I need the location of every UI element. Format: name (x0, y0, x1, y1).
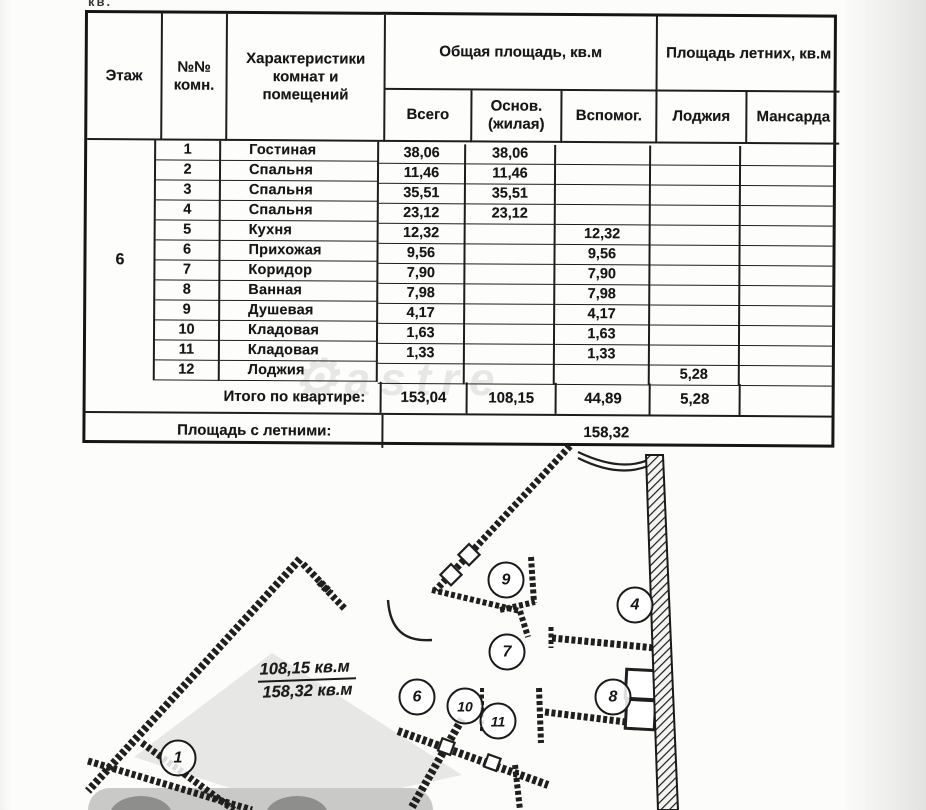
header-total-area-group: Общая площадь, кв.м (386, 15, 658, 92)
room-marker-11-label: 11 (491, 713, 506, 729)
room-name-cell: Кладовая (220, 321, 378, 342)
mansard-cell (740, 246, 832, 267)
aux-cell (556, 205, 651, 226)
main-cell (465, 304, 555, 325)
room-marker-4: 4 (617, 587, 654, 624)
total-cell: 4,17 (378, 304, 465, 325)
main-cell (465, 264, 555, 285)
header-loggia: Лоджия (657, 91, 747, 144)
room-name-cell: Кухня (221, 221, 379, 242)
room-name-cell: Коридор (220, 261, 378, 282)
room-marker-8: 8 (595, 679, 632, 716)
total-cell: 9,56 (378, 244, 465, 265)
room-no-cell: 4 (156, 200, 221, 220)
loggia-cell (650, 305, 740, 326)
room-marker-1: 1 (160, 740, 197, 777)
totals-total: 153,04 (381, 382, 467, 414)
room-marker-6-label: 6 (413, 688, 422, 706)
header-auxiliary: Вспомог. (562, 91, 657, 144)
room-no-cell: 7 (155, 260, 220, 280)
totals-loggia: 5,28 (651, 383, 740, 415)
outer-right-wall (646, 455, 678, 810)
room-no-cell: 11 (155, 340, 220, 360)
aux-cell: 1,33 (555, 345, 650, 366)
room-marker-4-label: 4 (631, 596, 640, 614)
mansard-cell (741, 206, 833, 227)
main-cell (465, 324, 555, 345)
room-marker-1-label: 1 (174, 749, 183, 767)
mansard-cell (740, 306, 832, 327)
main-cell (465, 284, 555, 305)
room-name-cell: Душевая (220, 301, 378, 322)
header-total: Всего (385, 90, 472, 143)
total-cell: 12,32 (379, 224, 466, 245)
plan-area-with-summer: 158,32 кв.м (258, 679, 357, 702)
total-cell: 1,63 (378, 324, 465, 345)
header-mansard: Мансарда (747, 92, 839, 145)
totals-mansard (740, 384, 831, 416)
total-cell: 1,33 (378, 344, 465, 365)
room-marker-9-label: 9 (502, 571, 511, 589)
mansard-cell (741, 146, 833, 167)
mansard-cell (740, 366, 832, 387)
loggia-cell (651, 205, 741, 226)
floor-value: 6 (86, 140, 156, 380)
aux-cell: 7,90 (555, 265, 650, 286)
loggia-cell (651, 145, 741, 166)
mansard-cell (741, 226, 833, 247)
page-top-cutoff-text: кв. (88, 0, 112, 9)
loggia-cell (650, 265, 740, 286)
loggia-cell (650, 325, 740, 346)
loggia-cell (650, 285, 740, 306)
main-cell: 11,46 (466, 164, 556, 185)
loggia-cell (651, 165, 741, 186)
room-no-cell: 6 (155, 240, 220, 260)
aux-cell: 1,63 (555, 325, 650, 346)
room-name-cell: Ванная (220, 281, 378, 302)
room-marker-7-label: 7 (503, 643, 512, 661)
aux-cell: 12,32 (556, 225, 651, 246)
mansard-cell (740, 346, 832, 367)
header-room-number: №№ комн. (162, 13, 228, 140)
header-characteristics: Характеристики комнат и помещений (227, 14, 386, 142)
main-cell: 38,06 (466, 144, 556, 165)
room-marker-6: 6 (399, 679, 436, 716)
room-no-cell: 9 (155, 300, 220, 320)
total-cell: 23,12 (379, 204, 466, 225)
totals-auxiliary: 44,89 (557, 383, 651, 415)
mansard-cell (741, 166, 833, 187)
table-body: 6 1Гостиная38,0638,062Спальня11,4611,463… (86, 140, 833, 385)
main-cell: 23,12 (466, 204, 556, 225)
room-marker-7: 7 (489, 634, 526, 671)
room-name-cell: Гостиная (221, 141, 379, 162)
header-summer-area-group: Площадь летних, кв.м (658, 17, 840, 93)
room-name-cell: Спальня (221, 181, 379, 202)
main-cell: 35,51 (466, 184, 556, 205)
room-name-cell: Спальня (221, 201, 379, 222)
floor-plan: 1 4 6 7 8 9 10 11 108,15 кв.м 158,32 кв.… (0, 443, 926, 810)
room-no-cell: 8 (155, 280, 220, 300)
loggia-cell: 5,28 (650, 365, 740, 386)
mansard-cell (740, 266, 832, 287)
aux-cell (556, 145, 651, 166)
aux-cell: 7,98 (555, 285, 650, 306)
area-table: Этаж №№ комн. Характеристики комнат и по… (82, 10, 837, 448)
main-cell (465, 344, 555, 365)
room-marker-10: 10 (447, 688, 484, 725)
room-marker-9: 9 (488, 562, 525, 599)
total-cell (378, 364, 465, 385)
room-no-cell: 1 (156, 140, 221, 160)
loggia-cell (650, 245, 740, 266)
aux-cell (556, 185, 651, 206)
floor-plan-drawing (0, 443, 926, 810)
totals-main: 108,15 (468, 382, 557, 414)
room-no-cell: 10 (155, 320, 220, 340)
room-name-cell: Кладовая (220, 341, 378, 362)
total-cell: 35,51 (379, 184, 466, 205)
aux-cell: 9,56 (555, 245, 650, 266)
plan-area-living: 108,15 кв.м (257, 657, 356, 682)
room-name-cell: Прихожая (220, 241, 378, 262)
room-name-cell: Лоджия (220, 361, 378, 382)
mansard-cell (740, 326, 832, 347)
room-no-cell: 12 (155, 360, 220, 380)
main-cell (466, 224, 556, 245)
totals-label: Итого по квартире: (86, 380, 382, 413)
room-name-cell: Спальня (221, 161, 379, 182)
aux-cell (555, 365, 650, 386)
table-header: Этаж №№ комн. Характеристики комнат и по… (87, 13, 834, 145)
loggia-cell (651, 185, 741, 206)
room-marker-11: 11 (480, 703, 517, 740)
mansard-cell (741, 186, 833, 207)
aux-cell: 4,17 (555, 305, 650, 326)
total-cell: 11,46 (379, 164, 466, 185)
total-cell: 7,90 (378, 264, 465, 285)
total-cell: 38,06 (379, 144, 466, 165)
main-cell (465, 364, 555, 385)
room-marker-8-label: 8 (609, 688, 618, 706)
loggia-cell (651, 225, 741, 246)
room-marker-10-label: 10 (457, 698, 473, 714)
room-no-cell: 5 (156, 220, 221, 240)
total-cell: 7,98 (378, 284, 465, 305)
aux-cell (556, 165, 651, 186)
room-no-cell: 2 (156, 160, 221, 180)
mansard-cell (740, 286, 832, 307)
room-no-cell: 3 (156, 180, 221, 200)
header-floor: Этаж (87, 13, 163, 140)
table-body-rows: 1Гостиная38,0638,062Спальня11,4611,463Сп… (155, 140, 833, 384)
header-main-living: Основ. (жилая) (472, 90, 562, 143)
plan-area-annotation: 108,15 кв.м 158,32 кв.м (257, 657, 357, 702)
loggia-cell (650, 345, 740, 366)
main-cell (465, 244, 555, 265)
